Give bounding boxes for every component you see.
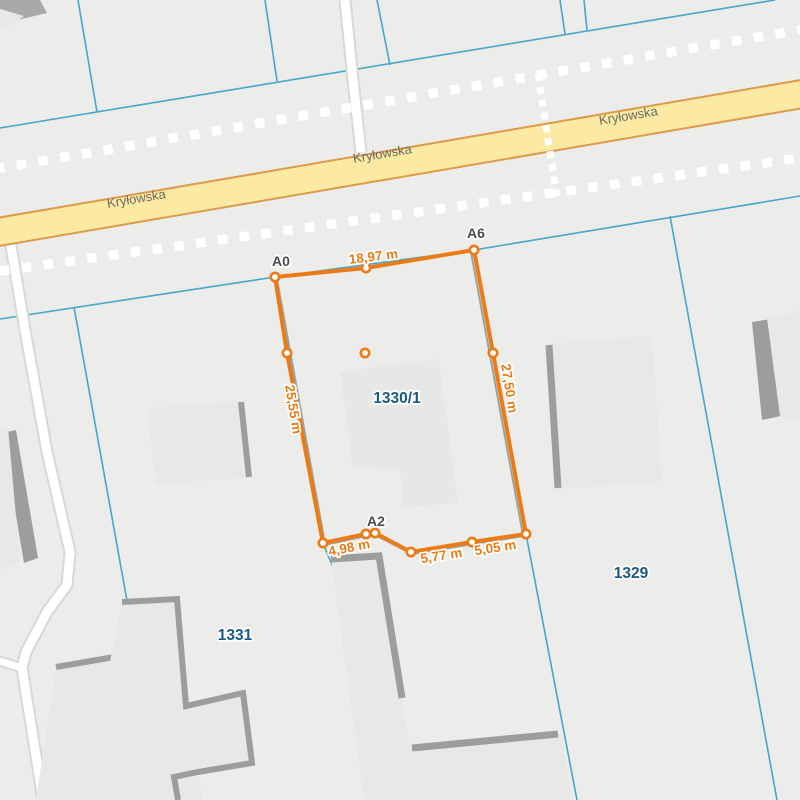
vertex-label-a6: A6 xyxy=(467,225,485,241)
parcel-label-1330-1: 1330/1 xyxy=(373,390,421,407)
vertex-marker[interactable] xyxy=(522,530,530,538)
vertex-marker[interactable] xyxy=(470,246,478,254)
vertex-label-a0: A0 xyxy=(272,253,290,269)
vertex-marker[interactable] xyxy=(271,273,279,281)
vertex-label-a2: A2 xyxy=(367,513,385,529)
vertex-marker[interactable] xyxy=(371,529,379,537)
vertex-marker[interactable] xyxy=(319,539,327,547)
parcel-label-1329: 1329 xyxy=(614,565,649,582)
parcel-label-1331: 1331 xyxy=(218,627,253,644)
vertex-marker[interactable] xyxy=(283,349,291,357)
building-right-center xyxy=(548,336,662,489)
vertex-marker[interactable] xyxy=(361,349,369,357)
vertex-marker[interactable] xyxy=(407,548,415,556)
cadastral-map-canvas[interactable]: KryłowskaKryłowskaKryłowskaA0A6A218,97 m… xyxy=(0,0,800,800)
map-viewport[interactable]: KryłowskaKryłowskaKryłowskaA0A6A218,97 m… xyxy=(0,0,800,800)
vertex-marker[interactable] xyxy=(489,349,497,357)
building-centerleft xyxy=(147,401,250,484)
